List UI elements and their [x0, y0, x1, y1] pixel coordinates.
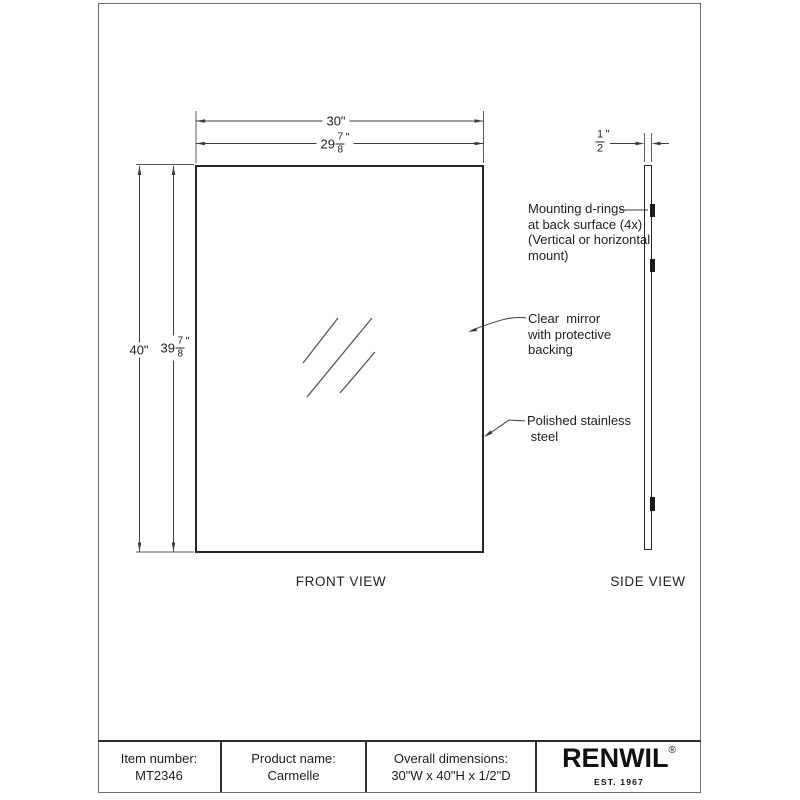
- inch-mark: ": [606, 130, 610, 141]
- dim-height-mirror: 3978": [157, 336, 194, 361]
- dim-width-mirror-whole: 29: [321, 138, 335, 151]
- title-block-product-cell: Product name: Carmelle: [220, 742, 365, 792]
- dim-height-overall: 40": [125, 343, 152, 358]
- dim-height-mirror-fraction: 78: [176, 337, 185, 360]
- renwil-logo: RENWIL ®: [562, 745, 676, 772]
- title-block-dimensions-cell: Overall dimensions: 30"W x 40"H x 1/2"D: [365, 742, 535, 792]
- item-number-label: Item number:: [121, 751, 198, 767]
- registered-trademark-symbol: ®: [669, 746, 676, 756]
- dim-width-mirror-fraction: 78: [336, 133, 345, 156]
- brand-tagline: EST. 1967: [594, 774, 644, 790]
- title-block-brand-cell: RENWIL ® EST. 1967: [535, 742, 701, 792]
- title-block-item-cell: Item number: MT2346: [98, 742, 220, 792]
- dim-depth-fraction: 12: [595, 130, 604, 155]
- dim-depth: 12": [590, 129, 613, 156]
- front-view-mirror-outline: [195, 165, 484, 553]
- inch-mark: ": [346, 133, 350, 144]
- d-ring-upper: [650, 259, 655, 272]
- product-name-label: Product name:: [251, 751, 336, 767]
- front-view-label: FRONT VIEW: [296, 574, 387, 589]
- annotation-clear-mirror: Clear mirror with protective backing: [528, 311, 611, 358]
- annotation-mounting-d-rings: Mounting d-rings at back surface (4x) (V…: [528, 201, 650, 263]
- d-ring-top: [650, 204, 655, 217]
- title-block: Item number: MT2346 Product name: Carmel…: [98, 740, 701, 792]
- spec-sheet: 30" 2978" 40" 3978" 12" Mounting d-rings…: [0, 0, 800, 800]
- inch-mark: ": [186, 337, 190, 348]
- item-number-value: MT2346: [135, 768, 183, 784]
- d-ring-lower: [650, 497, 655, 511]
- side-view-label: SIDE VIEW: [610, 574, 685, 589]
- dim-width-mirror: 2978": [317, 132, 354, 157]
- product-name-value: Carmelle: [267, 768, 319, 784]
- dim-height-mirror-whole: 39: [161, 342, 175, 355]
- overall-dimensions-label: Overall dimensions:: [394, 751, 508, 767]
- brand-wordmark: RENWIL: [562, 745, 668, 772]
- dim-width-overall: 30": [322, 114, 349, 129]
- annotation-polished-steel: Polished stainless steel: [527, 413, 631, 444]
- overall-dimensions-value: 30"W x 40"H x 1/2"D: [391, 768, 510, 784]
